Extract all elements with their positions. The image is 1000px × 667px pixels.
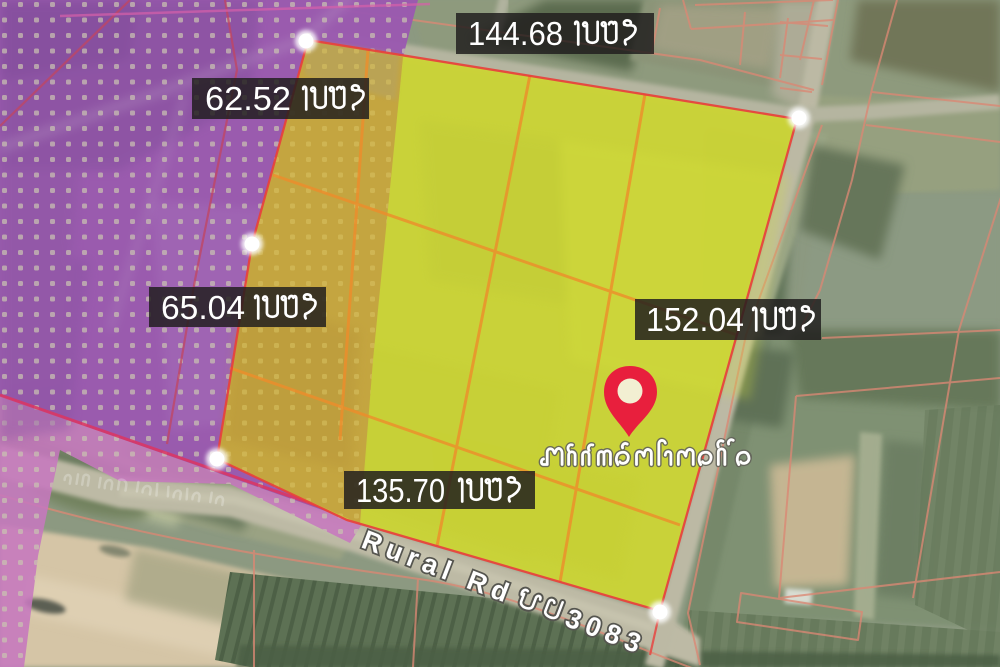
svg-text:62.52: 62.52: [205, 80, 291, 117]
svg-text:144.68: 144.68: [468, 15, 563, 52]
svg-text:65.04: 65.04: [161, 289, 245, 326]
svg-text:135.70: 135.70: [356, 472, 445, 509]
svg-text:152.04: 152.04: [646, 301, 744, 338]
